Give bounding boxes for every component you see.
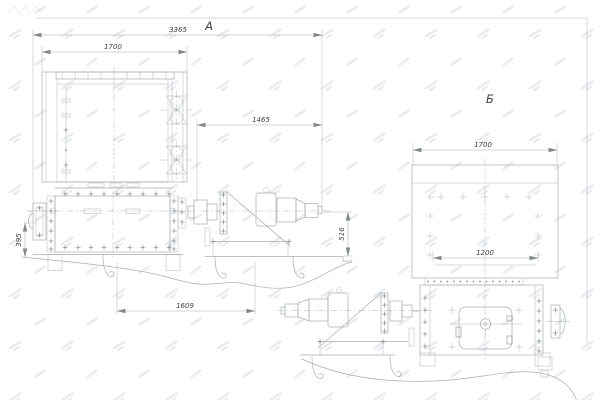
flange-bolt-dots — [427, 281, 520, 283]
svg-text:1200: 1200 — [476, 249, 494, 257]
svg-text:1700: 1700 — [104, 43, 122, 51]
svg-text:516: 516 — [338, 227, 346, 241]
svg-text:395: 395 — [15, 233, 23, 247]
svg-text:1700: 1700 — [474, 141, 492, 149]
view-a-label: А — [204, 19, 213, 33]
watermark-texture — [0, 0, 600, 400]
svg-text:3365: 3365 — [169, 26, 187, 34]
drawing-sheet: А 3365 1700 1465 395 516 — [0, 0, 600, 400]
svg-text:1465: 1465 — [252, 116, 270, 124]
svg-text:1609: 1609 — [176, 302, 194, 310]
technical-drawing: А 3365 1700 1465 395 516 — [0, 0, 600, 400]
view-b-label: Б — [486, 92, 494, 106]
